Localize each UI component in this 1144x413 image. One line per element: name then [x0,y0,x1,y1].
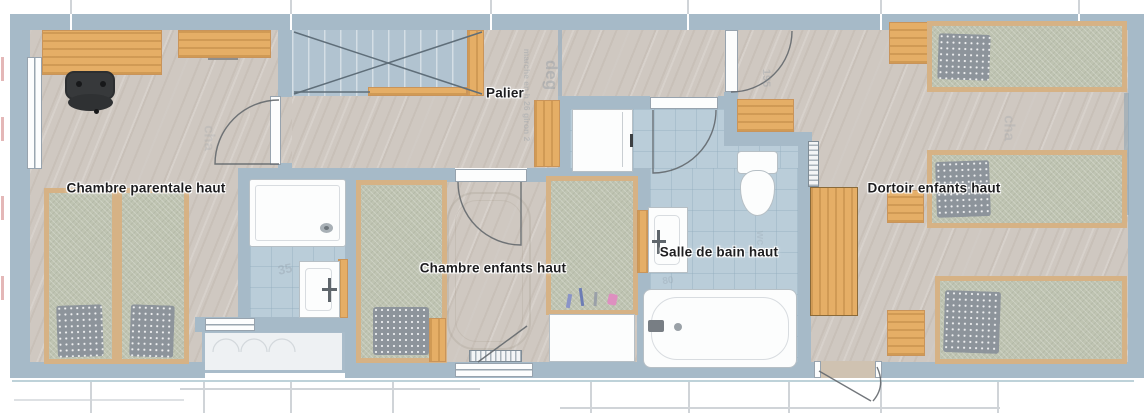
ghost-text-deg: deg [541,60,561,90]
door-arc-bain [653,110,716,173]
ghost-text-cha-dortoir: cha [1001,115,1018,141]
label-salle-de-bain[interactable]: Salle de bain haut [660,245,778,260]
ghost-text-wc: wc [754,231,766,246]
label-dortoir[interactable]: Dortoir enfants haut [867,181,1000,196]
ghost-arches [213,339,295,352]
ghost-text-cha-parentale: cha [201,125,218,151]
label-chambre-enfants[interactable]: Chambre enfants haut [420,261,567,276]
door-arc-enfants [458,182,521,245]
ghost-dim-195: 195 [760,69,772,87]
door-leaf-dortoir-bottom [819,371,871,401]
label-chambre-parentale[interactable]: Chambre parentale haut [67,181,226,196]
ghost-dim-80: 80 [662,275,675,287]
ghost-dim-35: 35 [276,260,293,278]
door-arc-parentale [215,100,279,164]
floor-plan: deg marche en h 26 giron 2 195 35 80 wc … [0,0,1144,413]
plan-line-overlay [0,0,1144,413]
door-arc-dortoir-bottom [873,367,881,401]
door-leaf-enfants-bottom [478,326,527,362]
label-palier[interactable]: Palier [486,86,524,101]
